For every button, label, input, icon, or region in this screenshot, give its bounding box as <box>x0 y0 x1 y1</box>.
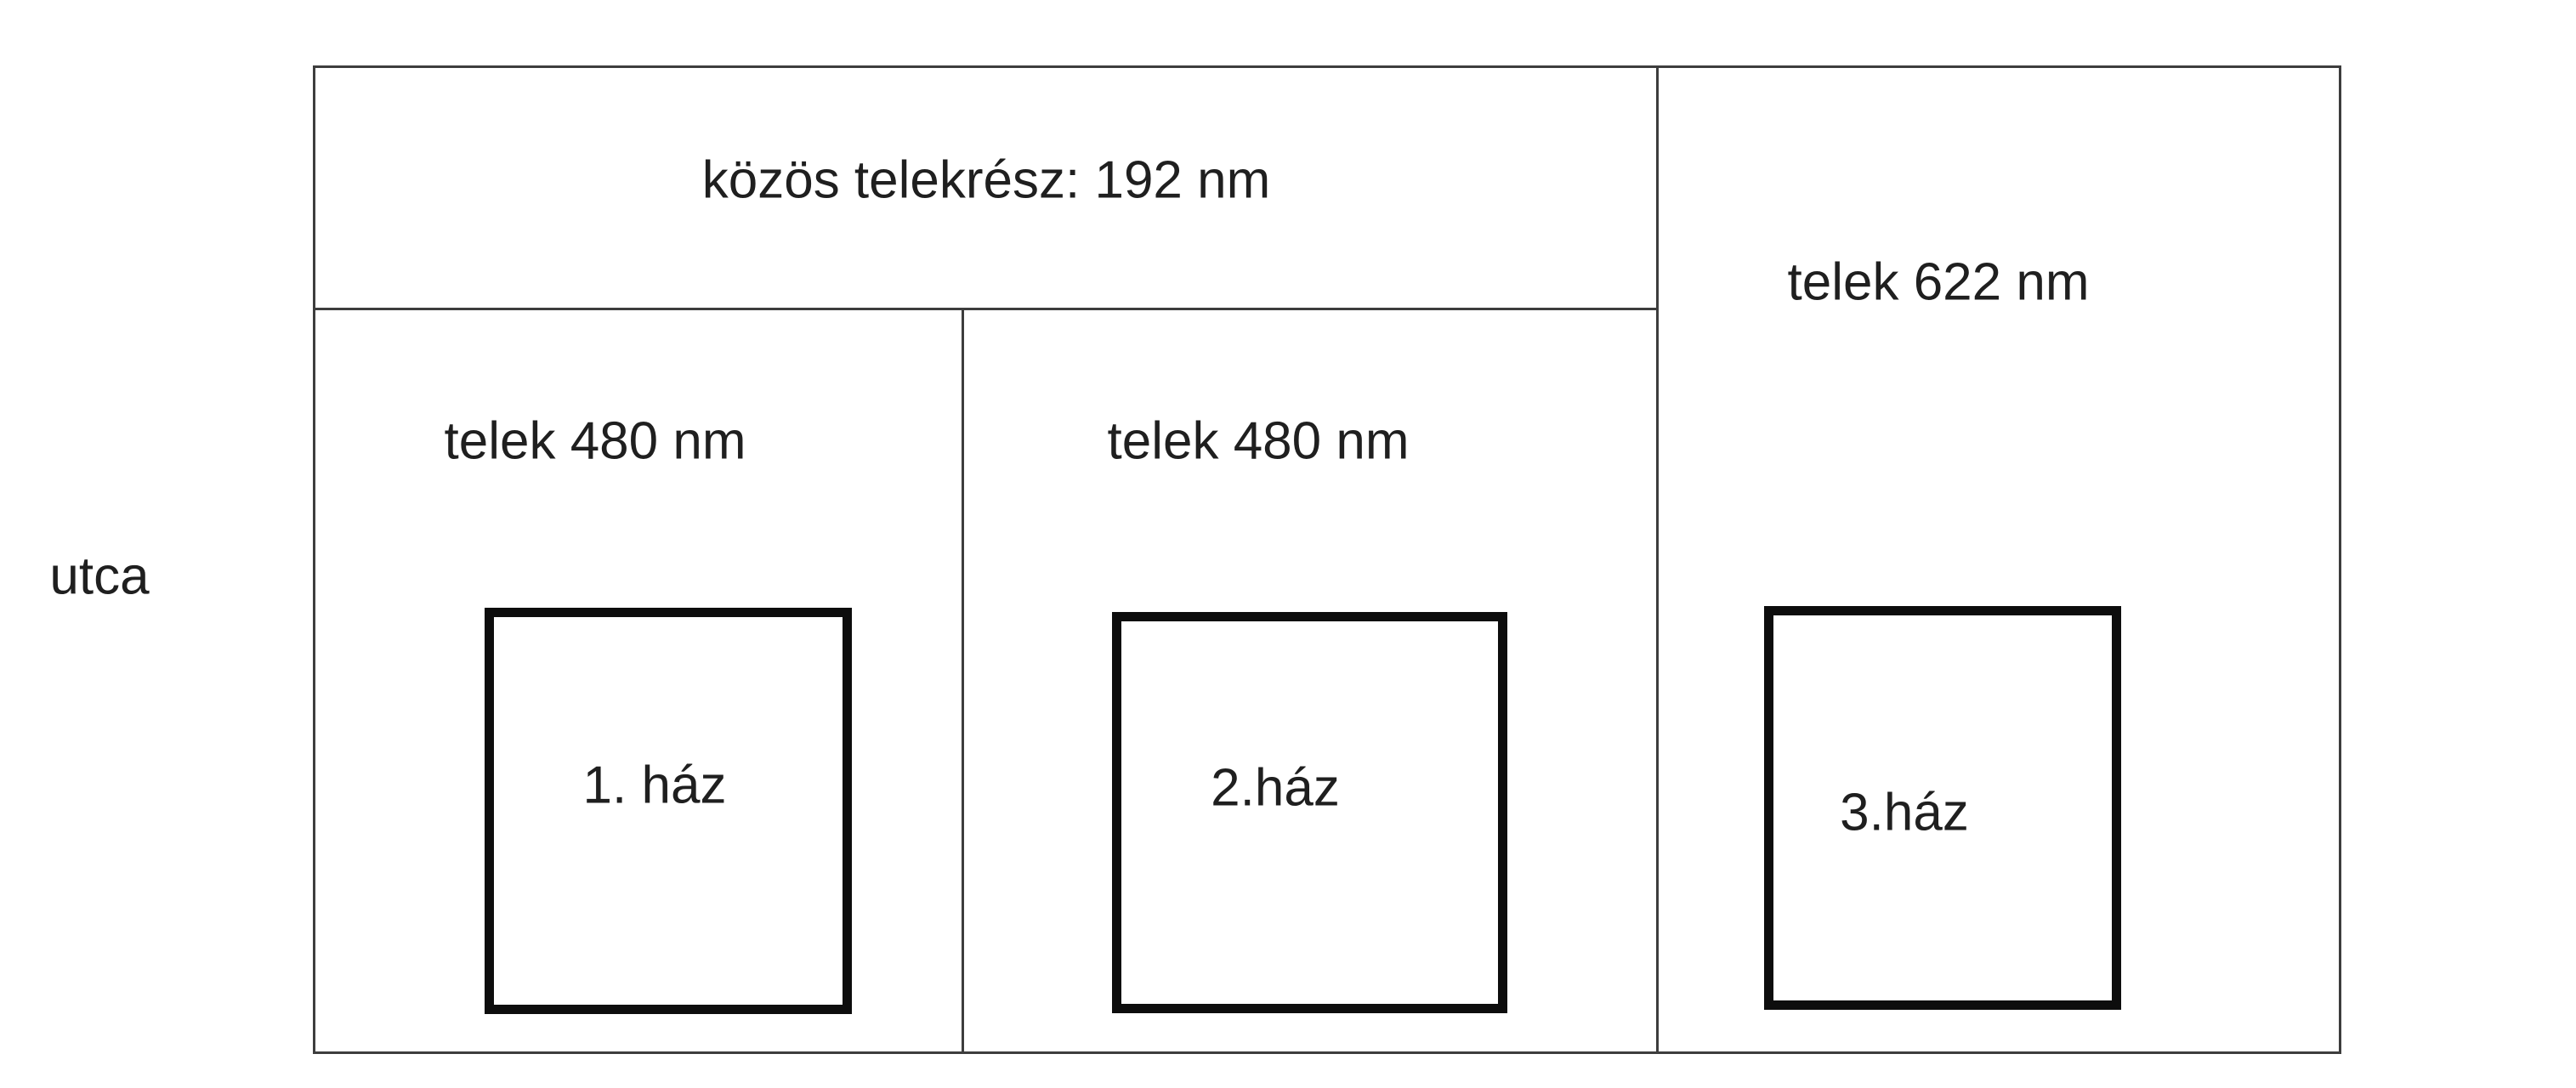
house-2-label: 2.ház <box>1211 757 1340 818</box>
plot-2-area-label: telek 480 nm <box>1108 411 1410 471</box>
plot-3-area-label: telek 622 nm <box>1788 252 2090 312</box>
plot-1-area-label: telek 480 nm <box>445 411 746 471</box>
common-area-label: közös telekrész: 192 nm <box>702 150 1271 210</box>
street-label: utca <box>49 546 149 606</box>
site-plan-diagram: utca közös telekrész: 192 nm telek 480 n… <box>0 0 2576 1088</box>
house-3-label: 3.ház <box>1840 782 1969 842</box>
house-1-label: 1. ház <box>583 755 727 815</box>
